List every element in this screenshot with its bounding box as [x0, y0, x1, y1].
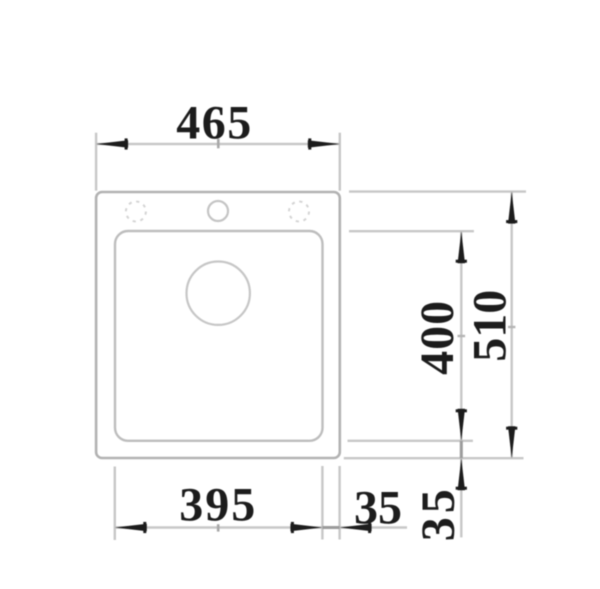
svg-text:465: 465 [176, 96, 251, 149]
svg-text:35: 35 [412, 489, 465, 541]
svg-text:395: 395 [179, 479, 255, 532]
svg-text:400: 400 [411, 301, 464, 375]
svg-text:35: 35 [354, 481, 402, 534]
